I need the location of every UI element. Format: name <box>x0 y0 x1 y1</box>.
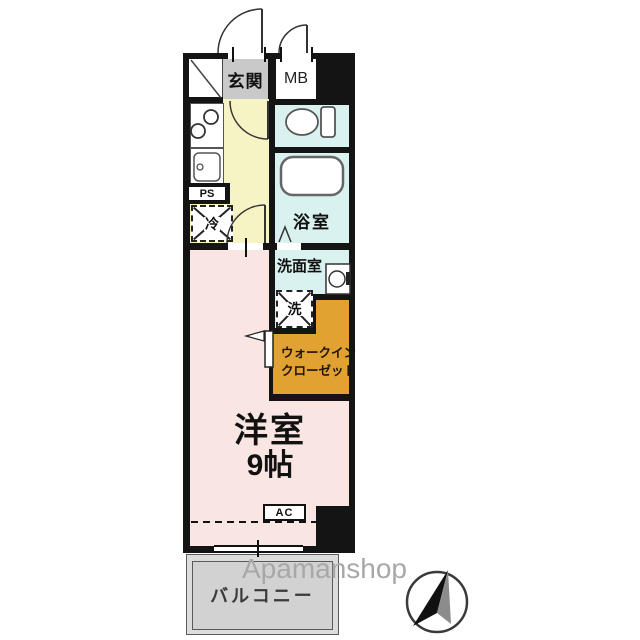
pipe-space-label: PS <box>200 188 215 200</box>
walk-in-closet: ウォークイン クローゼット <box>273 334 349 394</box>
room-entrance: 玄関 <box>223 59 268 99</box>
sink-counter <box>190 148 224 186</box>
washroom-label: 洗面室 <box>277 255 322 276</box>
refrigerator-label: 冷 <box>204 217 220 231</box>
room-bathroom: 浴室 <box>275 153 349 243</box>
compass-north-arrow <box>402 566 474 638</box>
entrance-label: 玄関 <box>228 67 264 92</box>
balcony-label: バルコニー <box>193 582 332 608</box>
shoe-cabinet <box>189 59 223 99</box>
sliding-window <box>214 545 303 553</box>
main-room-label: 洋室 9帖 <box>195 413 345 482</box>
walk-in-closet-upper <box>316 300 349 334</box>
room-toilet <box>275 105 349 147</box>
room-washroom: 洗面室 <box>275 250 349 294</box>
pipe-space: PS <box>184 183 230 204</box>
air-conditioner-box: AC <box>263 504 306 521</box>
floorplan-canvas: 玄関 MB PS 冷 浴室 洗面室 洗 <box>0 0 640 640</box>
meter-box: MB <box>276 59 316 99</box>
air-conditioner-label: AC <box>276 507 294 519</box>
entrance-door-swing-icon <box>218 9 262 53</box>
watermark-text: Apamanshop <box>242 553 407 585</box>
mb-door-swing-icon <box>279 25 307 53</box>
pipe-space-label-box: PS <box>188 186 226 201</box>
walk-in-closet-label: ウォークイン クローゼット <box>281 344 349 380</box>
washing-machine-label: 洗 <box>287 302 303 316</box>
structural-pillar <box>316 506 355 553</box>
refrigerator-space: 冷 <box>191 205 233 242</box>
room-main-left <box>190 250 269 546</box>
washing-machine-space: 洗 <box>276 290 313 328</box>
stove-counter <box>190 103 224 148</box>
bathroom-label: 浴室 <box>275 208 349 233</box>
meter-box-label: MB <box>284 70 308 88</box>
